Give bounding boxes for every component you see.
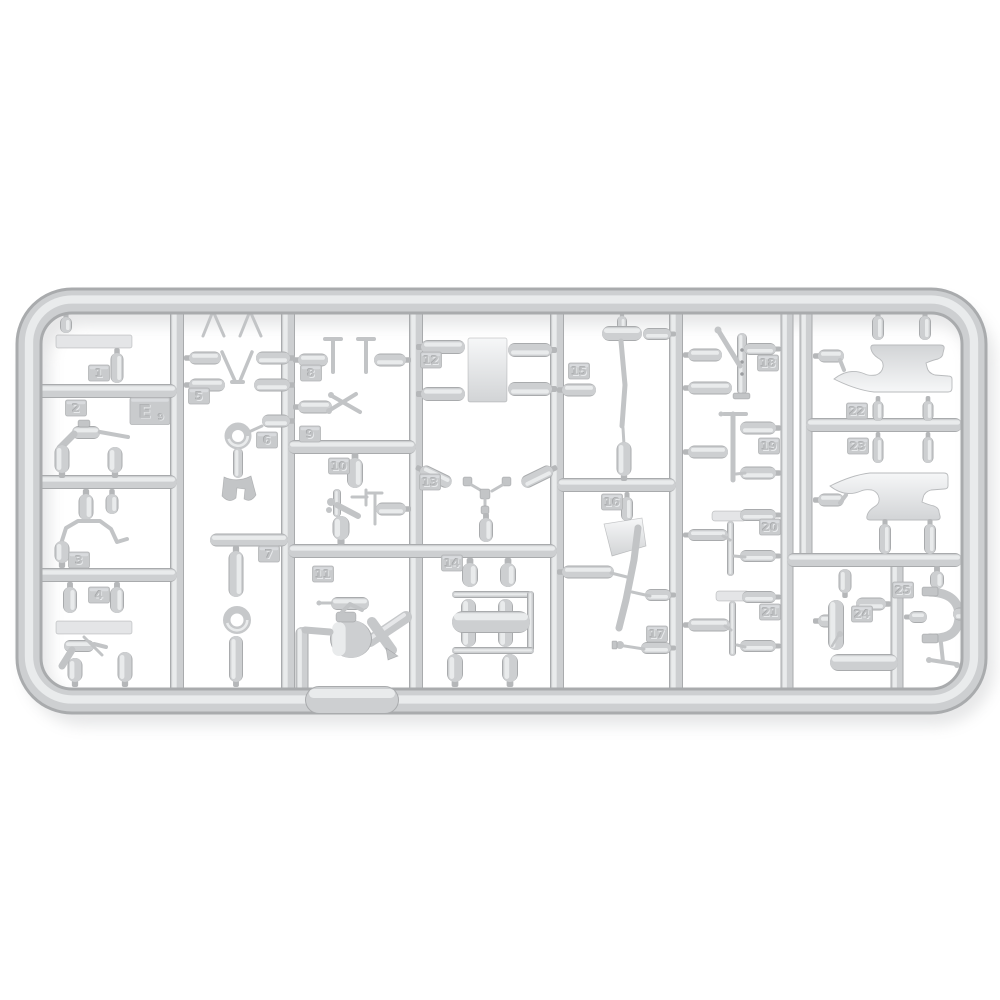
molded-part-cylinder: [740, 640, 781, 652]
part-number-tab-12: 121212: [421, 352, 442, 368]
runner-gate-pad: [305, 686, 399, 714]
svg-text:12: 12: [423, 353, 439, 367]
part-number-tab-8: 888: [301, 365, 322, 381]
molded-part-cylinder: [508, 382, 557, 396]
part-number-tab-22: 222222: [847, 403, 868, 419]
svg-text:17: 17: [649, 627, 665, 641]
part-number-tab-21: 212121: [760, 604, 781, 620]
molded-part-cylinder: [502, 654, 518, 687]
svg-text:25: 25: [895, 583, 911, 597]
molded-part-cylinder: [108, 447, 123, 478]
molded-part-cylinder: [742, 591, 781, 603]
molded-part-cylinder: [683, 619, 730, 632]
part-number-tab-19: 191919: [759, 438, 780, 454]
molded-part-cylinder: [740, 550, 781, 562]
molded-part-cylinder: [333, 516, 350, 545]
molded-part-cylinder: [617, 442, 632, 481]
molded-part-cylinder: [683, 446, 728, 459]
svg-text:3: 3: [75, 553, 83, 567]
svg-text:E: E: [139, 401, 152, 423]
molded-part-cylinder: [873, 432, 884, 463]
molded-part-cylinder: [462, 558, 478, 587]
svg-text:15: 15: [571, 364, 587, 378]
molded-part-cylinder: [63, 582, 77, 613]
part-number-tab-5: 555: [189, 388, 210, 404]
part-number-tab-16: 161616: [602, 494, 623, 510]
molded-part-cylinder: [683, 529, 728, 541]
part-number-tab-6: 666: [257, 432, 278, 448]
molded-part-cylinder: [683, 349, 722, 362]
svg-text:5: 5: [195, 389, 203, 403]
svg-text:9: 9: [158, 413, 164, 423]
part-number-tab-23: 232323: [848, 438, 869, 454]
svg-text:1: 1: [95, 366, 103, 380]
svg-text:8: 8: [307, 366, 315, 380]
part-number-tab-11: 111111: [313, 566, 334, 582]
molded-part-cylinder: [930, 566, 944, 589]
molded-part-cylinder: [110, 582, 124, 613]
svg-text:23: 23: [850, 439, 866, 453]
molded-part-cylinder: [79, 489, 94, 520]
svg-text:21: 21: [762, 605, 778, 619]
part-number-tab-20: 202020: [760, 519, 781, 535]
molded-part-cylinder: [740, 422, 781, 435]
molded-part-cylinder: [873, 396, 884, 421]
molded-part-cylinder: [557, 566, 614, 579]
molded-part-cylinder: [479, 513, 493, 542]
sprue-parts: [55, 311, 983, 687]
part-number-tab-17: 171717: [647, 626, 668, 642]
part-number-tab-15: 151515: [569, 363, 590, 379]
part-number-tab-25: 252525: [893, 582, 914, 598]
part-number-tab-4: 444: [89, 587, 110, 603]
molded-part-cylinder: [923, 432, 934, 463]
sprue-letter-tab: EEE999: [130, 398, 170, 425]
part-number-tab-14: 141414: [442, 555, 463, 571]
svg-text:18: 18: [760, 356, 776, 370]
part-number-tab-2: 222: [66, 400, 87, 416]
anvil-part: [834, 345, 952, 392]
molded-part-cylinder: [416, 387, 465, 401]
part-number-tab-10: 101010: [329, 458, 350, 474]
molded-part-cylinder: [106, 489, 119, 514]
anvil-part: [830, 473, 948, 520]
svg-text:11: 11: [315, 567, 331, 581]
molded-part-cylinder: [118, 652, 133, 687]
part-number-tab-24: 242424: [852, 606, 873, 622]
svg-text:2: 2: [72, 401, 80, 415]
part-number-tab-13: 131313: [420, 474, 441, 490]
part-number-tab-7: 777: [259, 546, 280, 562]
molded-part-cylinder: [55, 541, 70, 568]
molded-part-cylinder: [923, 396, 934, 421]
svg-text:4: 4: [95, 588, 103, 602]
molded-part-cylinder: [55, 445, 70, 478]
svg-text:10: 10: [331, 459, 347, 473]
svg-text:19: 19: [761, 439, 777, 453]
sprue-photo: 1112223334445556667778889991010101111111…: [0, 0, 1000, 1000]
molded-part-cylinder: [374, 354, 411, 367]
svg-text:9: 9: [306, 427, 314, 441]
molded-part-cylinder: [683, 382, 732, 395]
molded-part-cylinder: [229, 636, 243, 687]
molded-part-cylinder: [508, 343, 557, 357]
molded-part-cylinder: [904, 611, 927, 623]
molded-part-cylinder: [500, 558, 516, 587]
product-photo: 1112223334445556667778889991010101111111…: [0, 0, 1000, 1000]
part-number-tab-9: 999: [300, 426, 321, 442]
svg-text:13: 13: [422, 475, 438, 489]
molded-part-cylinder: [68, 658, 83, 687]
molded-part-cylinder: [744, 343, 781, 355]
molded-part-cylinder: [924, 519, 936, 554]
svg-text:6: 6: [263, 433, 271, 447]
svg-text:7: 7: [265, 547, 273, 561]
molded-part-cylinder: [447, 654, 463, 687]
molded-part-cylinder: [839, 569, 852, 598]
svg-text:16: 16: [604, 495, 620, 509]
molded-part-cylinder: [229, 546, 244, 597]
part-number-tab-3: 333: [69, 552, 90, 568]
molded-part-cylinder: [111, 348, 124, 383]
svg-text:22: 22: [849, 404, 865, 418]
svg-text:24: 24: [854, 607, 870, 621]
molded-part-cylinder: [184, 352, 221, 365]
svg-text:14: 14: [444, 556, 460, 570]
part-number-tab-1: 111: [89, 365, 110, 381]
molded-part-cylinder: [879, 519, 891, 554]
molded-part-cylinder: [376, 503, 411, 516]
svg-text:20: 20: [762, 520, 778, 534]
part-number-tab-18: 181818: [758, 355, 779, 371]
